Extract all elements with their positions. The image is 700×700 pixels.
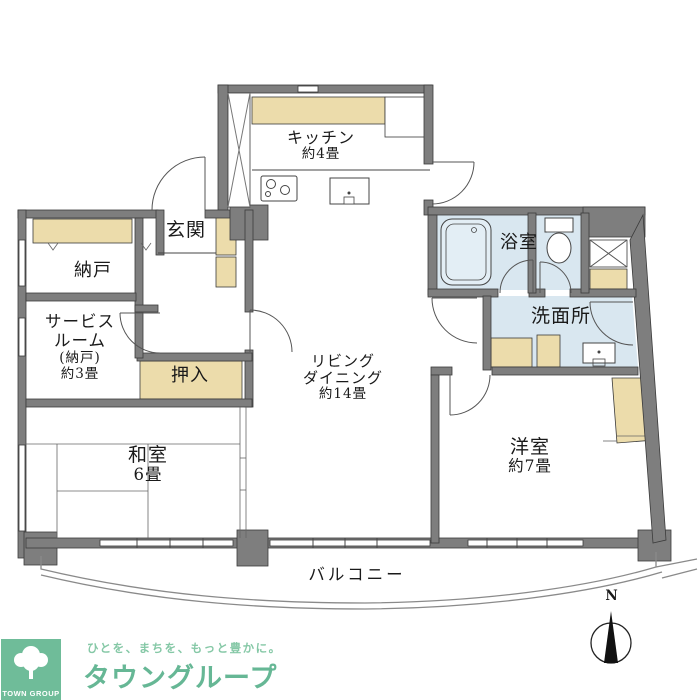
duct-shaft-icon — [590, 240, 627, 267]
kitchen-label: キッチン 約4畳 — [266, 129, 376, 162]
closet-label: 押入 — [150, 366, 230, 386]
service-room-label: サービス ルーム (納戸) 約3畳 — [28, 312, 132, 383]
washbasin-icon — [583, 343, 615, 366]
north-label: N — [599, 589, 625, 604]
pipe-shaft-icon — [228, 93, 250, 207]
compass-icon — [591, 611, 631, 663]
tree-icon — [1, 639, 61, 689]
japanese-room-label: 和室 6畳 — [98, 445, 198, 485]
logo-tagline: ひとを、まちを、もっと豊かに。 — [87, 640, 282, 656]
gas-stove-icon — [261, 176, 297, 201]
storage-label: 納戸 — [53, 261, 133, 281]
town-group-text: TOWN GROUP — [1, 689, 61, 698]
balcony-label: バルコニー — [287, 566, 427, 584]
entrance-label: 玄関 — [160, 220, 212, 241]
western-room-label: 洋室 約7畳 — [480, 437, 580, 476]
logo-brand: タウングループ — [83, 656, 277, 695]
washroom-label: 洗面所 — [511, 306, 611, 327]
floorplan-page: キッチン 約4畳 玄関 納戸 サービス ルーム (納戸) 約3畳 押入 リビング… — [0, 0, 700, 700]
bathroom-label: 浴室 — [479, 233, 559, 253]
kitchen-sink-icon — [330, 178, 369, 204]
town-group-logo: TOWN GROUP — [1, 639, 61, 700]
living-dining-label: リビング ダイニング 約14畳 — [288, 353, 398, 402]
